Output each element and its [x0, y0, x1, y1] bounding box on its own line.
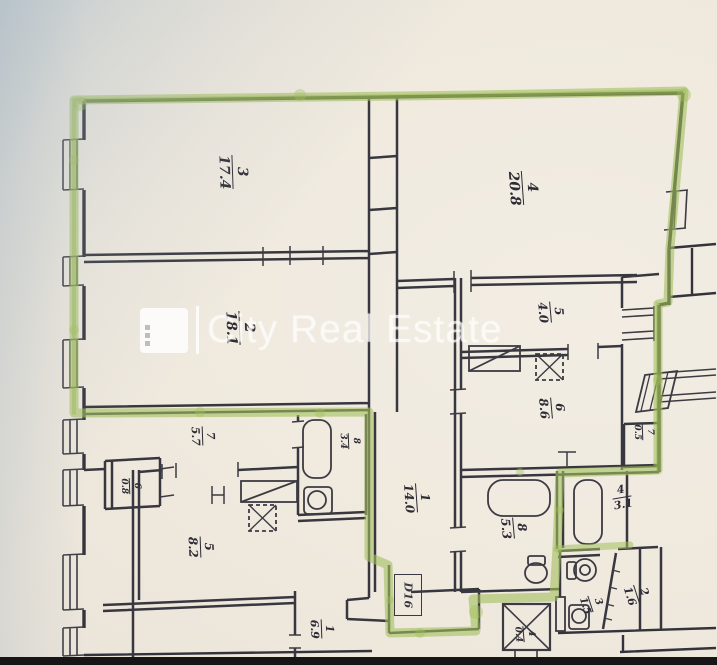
- floor-plan-photo: 3 17.4 4 20.8 2 18.1 5 4.0 6 8.6 7: [0, 0, 717, 665]
- entrance-door-tag: D16: [394, 574, 422, 616]
- door-tag-text: D16: [402, 582, 415, 608]
- photo-bottom-edge: [0, 657, 717, 665]
- dimension-labels-layer: [0, 0, 717, 665]
